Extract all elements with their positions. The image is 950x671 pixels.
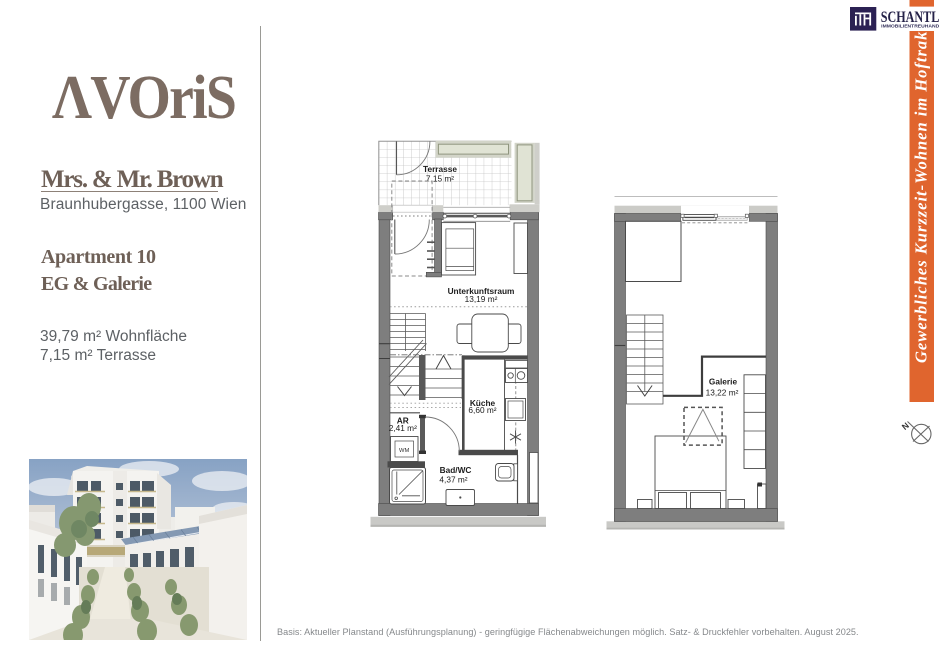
svg-text:2,41 m²: 2,41 m² [389,423,417,433]
svg-text:Galerie: Galerie [709,377,738,387]
svg-text:6,60 m²: 6,60 m² [468,405,496,415]
svg-text:N: N [900,420,911,432]
svg-text:4,37 m²: 4,37 m² [439,474,467,484]
svg-text:13,22 m²: 13,22 m² [706,387,739,397]
svg-text:13,19 m²: 13,19 m² [465,294,498,304]
svg-text:WM: WM [399,448,409,454]
svg-text:7,15 m²: 7,15 m² [426,173,454,183]
